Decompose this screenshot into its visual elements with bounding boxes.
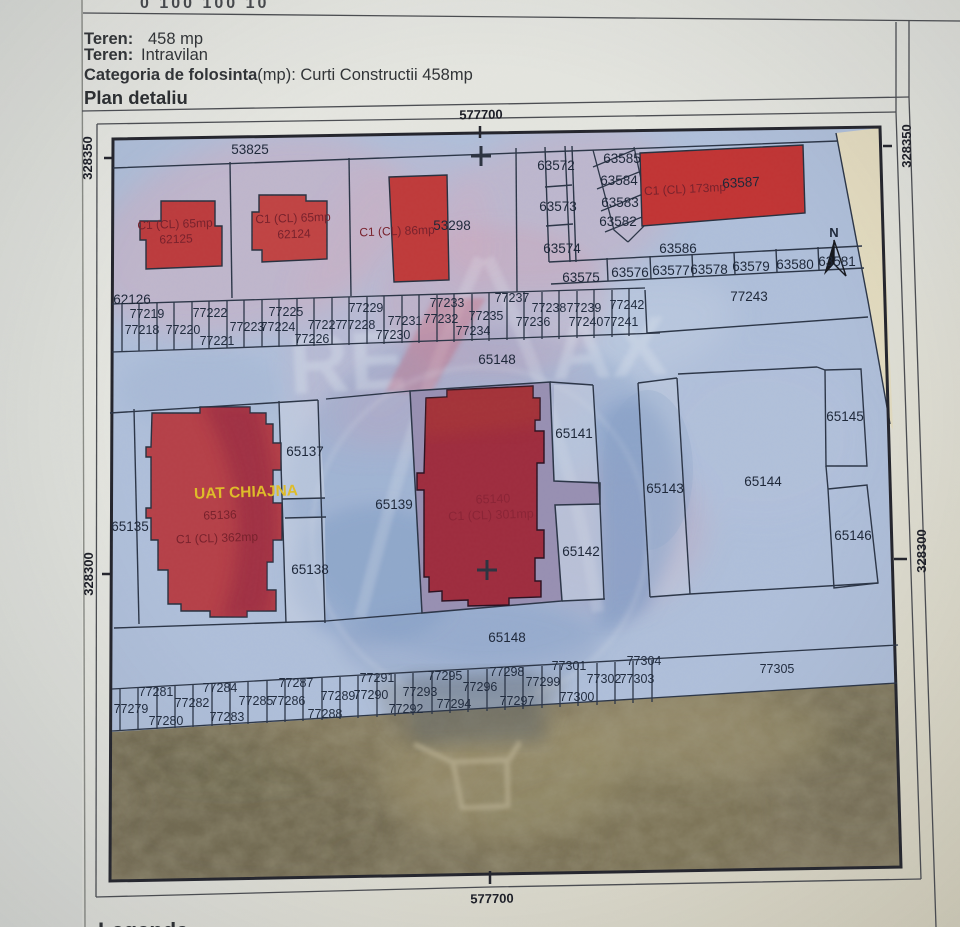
svg-text:Legenda: Legenda	[98, 918, 189, 927]
